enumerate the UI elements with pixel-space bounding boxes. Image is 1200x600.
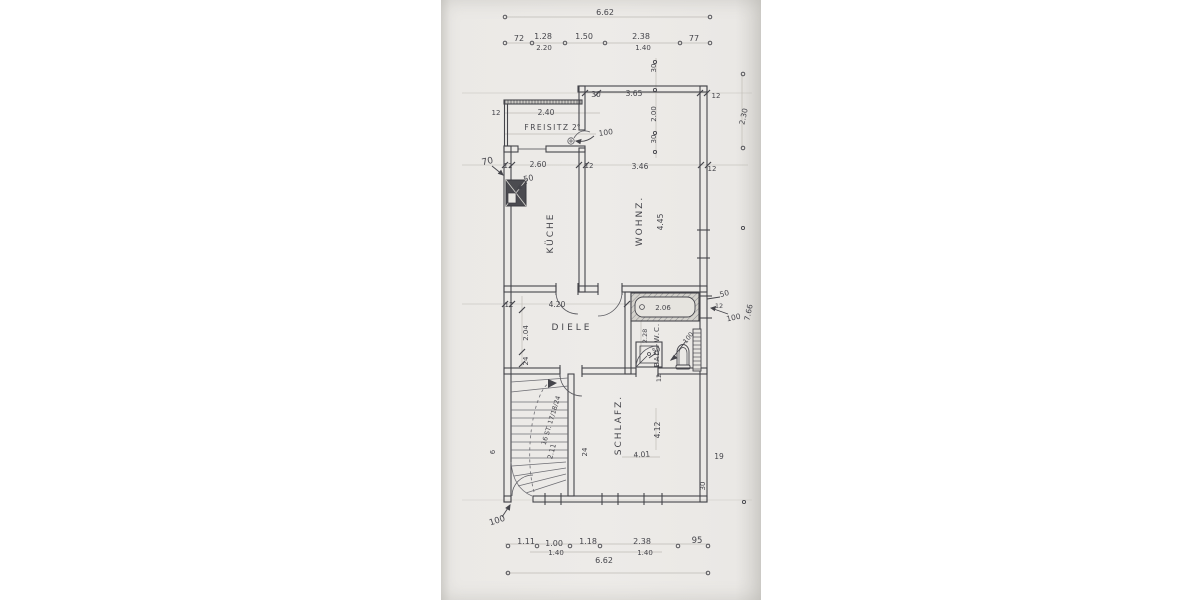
dim-top: 1.40: [635, 44, 651, 52]
dim-tub-offset: 50: [719, 288, 731, 299]
dim-freisitz-door: 100: [598, 127, 614, 138]
dim-top: 1.28: [534, 32, 552, 41]
dim-bottom: 1.11: [517, 537, 535, 546]
dim-bottom: 1.40: [548, 549, 564, 557]
dim-stairs-wall: 24: [581, 447, 589, 456]
dim-mid: 12: [708, 165, 717, 173]
dim-diele-wall: 12: [505, 301, 514, 309]
dim-upper-v: 30: [650, 64, 658, 73]
dim-freisitz-width: 2.40: [538, 108, 555, 117]
dim-bottom: 1.40: [637, 549, 653, 557]
dim-bath-wall: 12: [655, 374, 663, 382]
dim-bath-height: 2.28: [641, 329, 649, 343]
dim-overall-top: 6.62: [596, 8, 614, 17]
dim-schlafz-width: 4.01: [633, 449, 651, 459]
floor-plan-drawing: 6.62 72 1.28 2.20 1.50 2.38 1.40 77 30 3…: [0, 0, 1200, 600]
dim-mid: 12: [504, 162, 513, 170]
dim-schlafz-bottom: 30: [699, 482, 707, 491]
dim-top: 72: [514, 34, 524, 43]
room-label-schlafz: SCHLAFZ.: [614, 395, 624, 455]
dim-upper: 12: [712, 92, 721, 100]
dim-bottom: 2.38: [633, 537, 651, 546]
dim-diele-sub: 24: [522, 356, 530, 365]
stairs: [511, 378, 568, 496]
freisitz-drain-symbol: [568, 138, 574, 144]
dim-top: 2.20: [536, 44, 552, 52]
dim-bottom: 95: [692, 536, 703, 546]
dim-diele-width: 4.20: [549, 300, 566, 309]
dim-overall-bottom: 6.62: [595, 556, 613, 565]
dim-bottom: 1.00: [545, 539, 563, 548]
dim-left-six: 6: [489, 449, 497, 454]
dim-tub-length: 2.06: [655, 304, 671, 312]
dim-schlafz-right: 19: [714, 452, 724, 461]
dim-diele-height: 2.04: [522, 325, 530, 341]
dim-freisitz-deg: 2°: [572, 123, 581, 132]
dim-upper-v: 2.00: [650, 106, 658, 122]
dim-top: 2.38: [632, 32, 650, 41]
dim-mid: 3.46: [632, 162, 649, 171]
dim-wohnz-height: 4.45: [656, 213, 665, 230]
dim-mid: 12: [585, 162, 594, 170]
dim-top: 1.50: [575, 32, 593, 41]
dimension-ticks: [502, 15, 746, 575]
stairs-note: 16 ST. 17/18/24: [540, 395, 563, 446]
dim-upper: 3.65: [626, 89, 643, 98]
dim-upper-v: 30: [650, 135, 658, 144]
dim-tub-door: 100: [726, 312, 742, 324]
dim-tub-wall: 12: [715, 302, 723, 310]
dim-entrance-door: 100: [488, 514, 507, 529]
room-label-kueche: KÜCHE: [545, 213, 556, 254]
dim-freisitz-wall: 12: [492, 109, 501, 117]
chimney: [506, 180, 526, 206]
dim-upper: 30: [591, 90, 601, 99]
dim-stairs-width: 2.11: [546, 443, 558, 460]
dim-mid: 2.60: [530, 160, 547, 169]
dim-chimney-width: 50: [523, 173, 535, 184]
scanned-floor-plan-page: { "rooms": { "kueche": "KÜCHE", "wohnz":…: [0, 0, 1200, 600]
dim-bottom: 1.18: [579, 537, 597, 546]
dim-right-230: 2.30: [737, 107, 749, 125]
toilet: [676, 345, 690, 370]
room-label-wohnz: WOHNZ.: [635, 196, 645, 247]
room-label-diele: DIELE: [552, 323, 593, 333]
dim-schlafz-height: 4.12: [653, 421, 662, 438]
room-label-freisitz: FREISITZ: [524, 123, 569, 132]
dim-top: 77: [689, 34, 699, 43]
dim-right-766: 7.66: [742, 303, 754, 321]
